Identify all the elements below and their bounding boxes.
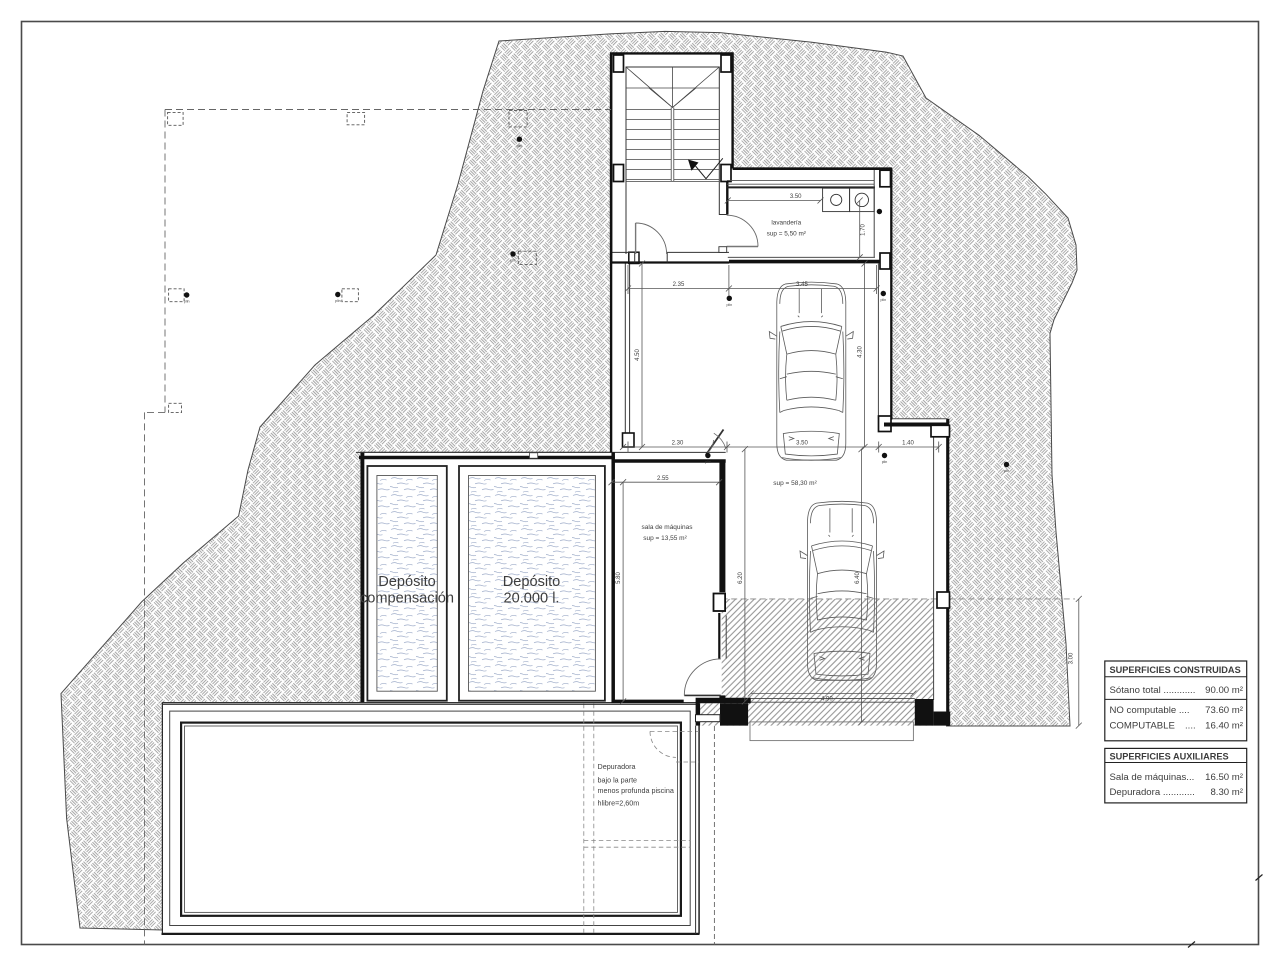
svg-text:16.50 m²: 16.50 m² bbox=[1205, 772, 1244, 783]
svg-text:sup = 5,50 m²: sup = 5,50 m² bbox=[767, 231, 806, 238]
svg-text:plin: plin bbox=[184, 300, 190, 304]
svg-text:16.40 m²: 16.40 m² bbox=[1205, 721, 1244, 732]
svg-text:4.50: 4.50 bbox=[635, 349, 641, 361]
svg-text:Sala de máquinas...: Sala de máquinas... bbox=[1110, 772, 1195, 783]
svg-text:6.20: 6.20 bbox=[738, 572, 744, 584]
svg-text:SUPERFICIES AUXILIARES: SUPERFICIES AUXILIARES bbox=[1110, 751, 1229, 761]
svg-text:plin: plin bbox=[726, 303, 732, 307]
svg-text:sup = 58,30 m²: sup = 58,30 m² bbox=[773, 480, 817, 487]
svg-text:5.80: 5.80 bbox=[616, 572, 622, 584]
svg-text:Depuradora: Depuradora bbox=[598, 762, 636, 771]
svg-text:73.60 m²: 73.60 m² bbox=[1205, 705, 1244, 716]
svg-text:sup = 13,55 m²: sup = 13,55 m² bbox=[643, 535, 687, 542]
svg-text:Depósito: Depósito bbox=[378, 574, 436, 590]
svg-text:6.40: 6.40 bbox=[855, 572, 861, 584]
svg-text:90.00 m²: 90.00 m² bbox=[1205, 685, 1244, 696]
svg-text:plin: plin bbox=[882, 460, 888, 464]
svg-text:Depuradora ............: Depuradora ............ bbox=[1110, 787, 1195, 798]
svg-text:plin: plin bbox=[517, 144, 523, 148]
svg-text:hlibre=2,60m: hlibre=2,60m bbox=[598, 799, 640, 808]
svg-text:2.30: 2.30 bbox=[672, 441, 684, 447]
svg-text:3.50: 3.50 bbox=[796, 441, 808, 447]
svg-text:20.000 l.: 20.000 l. bbox=[504, 591, 560, 607]
svg-text:COMPUTABLE: COMPUTABLE bbox=[1110, 721, 1175, 732]
svg-text:sala de máquinas: sala de máquinas bbox=[642, 524, 694, 531]
svg-text:2.35: 2.35 bbox=[673, 282, 685, 288]
svg-text:lavandería: lavandería bbox=[771, 220, 801, 227]
svg-text:4.30: 4.30 bbox=[858, 346, 864, 358]
svg-text:NO computable ....: NO computable .... bbox=[1110, 705, 1190, 716]
svg-text:plin: plin bbox=[1004, 469, 1010, 473]
svg-text:3.00: 3.00 bbox=[1069, 652, 1075, 664]
svg-text:3.45: 3.45 bbox=[796, 282, 808, 288]
svg-text:1.70: 1.70 bbox=[861, 224, 867, 236]
svg-text:Sótano total ............: Sótano total ............ bbox=[1110, 685, 1196, 696]
svg-text:plin: plin bbox=[335, 299, 341, 303]
svg-text:bajo la parte: bajo la parte bbox=[598, 776, 638, 785]
svg-text:Depósito: Depósito bbox=[503, 574, 561, 590]
svg-text:plin: plin bbox=[705, 460, 711, 464]
svg-text:plin: plin bbox=[880, 298, 886, 302]
svg-text:4.90: 4.90 bbox=[821, 697, 833, 703]
svg-text:1.40: 1.40 bbox=[902, 441, 914, 447]
svg-text:menos profunda piscina: menos profunda piscina bbox=[598, 786, 674, 795]
svg-text:plin: plin bbox=[510, 259, 516, 263]
svg-text:....: .... bbox=[1185, 721, 1196, 732]
svg-text:SUPERFICIES CONSTRUIDAS: SUPERFICIES CONSTRUIDAS bbox=[1110, 665, 1241, 675]
svg-text:8.30 m²: 8.30 m² bbox=[1210, 787, 1243, 798]
svg-text:2.55: 2.55 bbox=[657, 476, 669, 482]
svg-text:compensación: compensación bbox=[360, 591, 454, 607]
svg-text:3.50: 3.50 bbox=[790, 194, 802, 200]
